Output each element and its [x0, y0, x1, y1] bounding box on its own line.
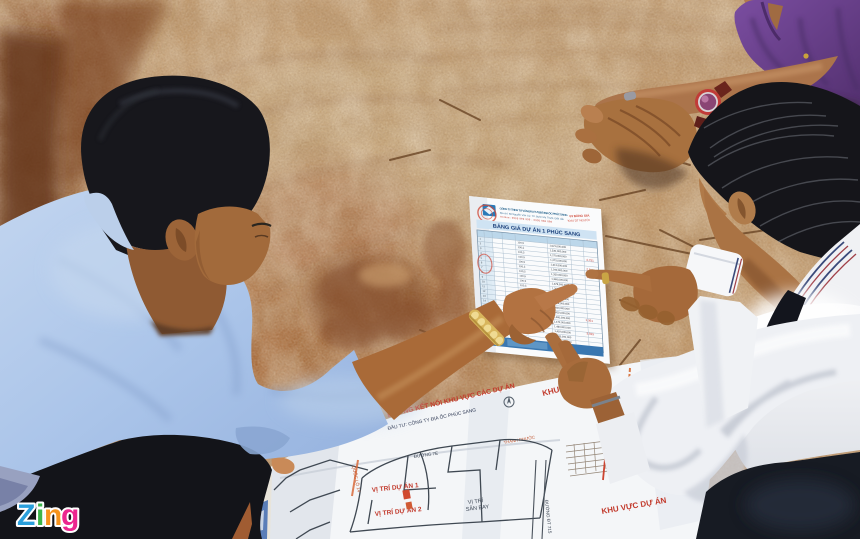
svg-text:g: g	[61, 499, 79, 532]
svg-text:Z: Z	[17, 499, 35, 532]
svg-text:KHU DT NGƯỜI: KHU DT NGƯỜI	[567, 217, 590, 223]
svg-text:n: n	[44, 499, 62, 532]
